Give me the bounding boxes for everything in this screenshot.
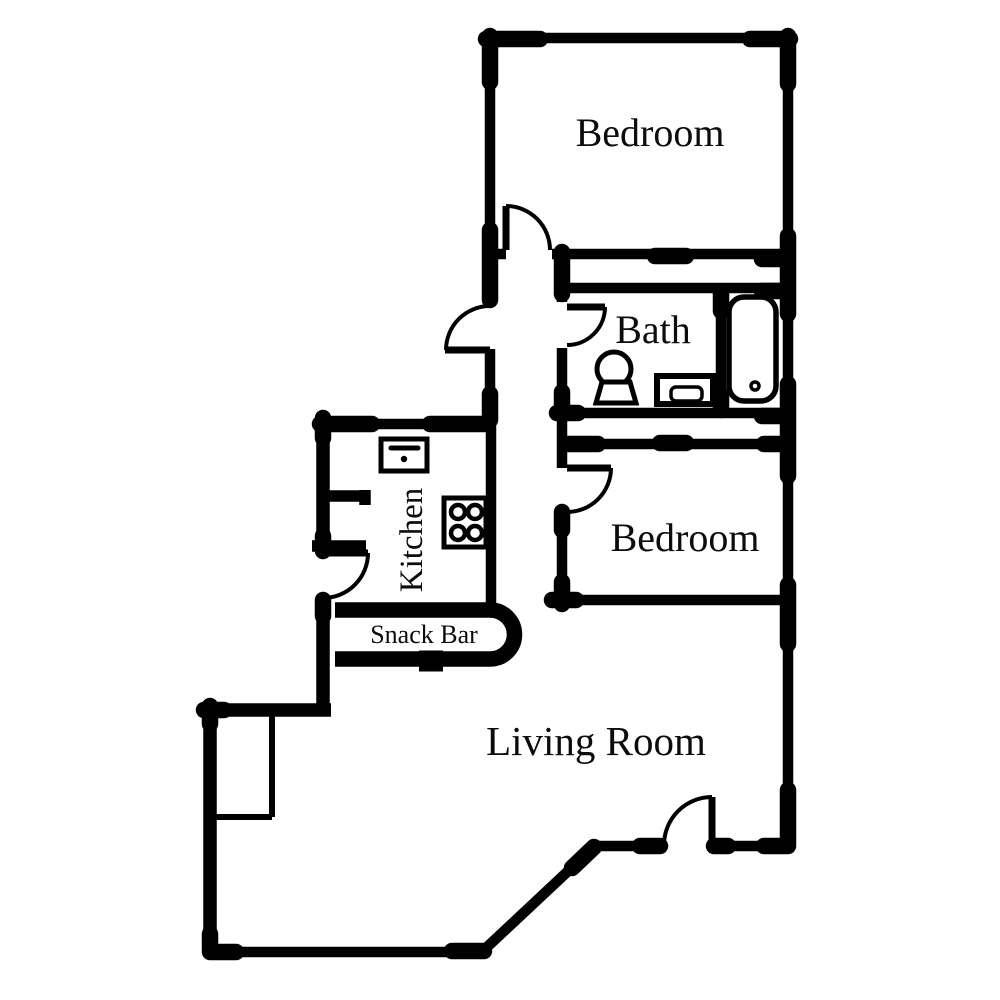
living-room-label: Living Room xyxy=(486,718,706,764)
floor-plan: Bedroom Bath Bedroom Kitchen Snack Bar L… xyxy=(0,0,1000,1000)
walls xyxy=(200,33,792,953)
pedestal-sink-icon xyxy=(596,352,636,403)
snack-bar-label: Snack Bar xyxy=(370,620,478,649)
living-room-closet-walls xyxy=(212,714,272,817)
kitchen-sink-icon xyxy=(381,439,427,471)
living-room-entry-door-swing-icon xyxy=(664,797,712,845)
kitchen-label: Kitchen xyxy=(394,488,430,592)
bedroom1-label: Bedroom xyxy=(576,110,725,155)
bath-door-swing-icon xyxy=(567,307,605,345)
stove-icon xyxy=(444,498,486,547)
bedroom2-label: Bedroom xyxy=(611,515,760,560)
side-entry-door-swing-icon xyxy=(446,306,490,350)
bedroom2-door-swing-icon xyxy=(567,468,611,512)
toilet-icon xyxy=(657,376,713,404)
main-walls xyxy=(210,33,792,952)
west-exterior-walls xyxy=(200,415,331,953)
bedroom1-door-swing-icon xyxy=(506,206,550,250)
bath-label: Bath xyxy=(615,307,691,352)
floor-plan-canvas: Bedroom Bath Bedroom Kitchen Snack Bar L… xyxy=(0,0,1000,1000)
wall-corner-accents xyxy=(204,36,790,952)
kitchen-door-swing-icon xyxy=(323,553,368,598)
bathtub-icon xyxy=(729,297,776,401)
